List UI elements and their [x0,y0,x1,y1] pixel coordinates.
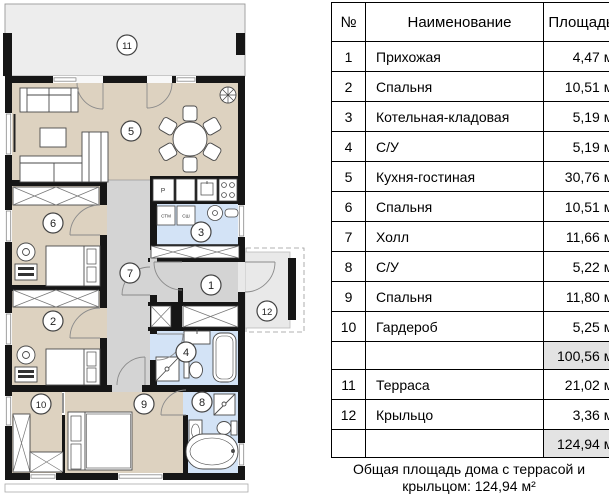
washer-icon-label: СТМ [161,214,171,219]
table-row: 5Кухня-гостиная30,76 м² [332,162,609,192]
bedroom6-furniture [15,243,100,286]
room-2-badge: 2 [50,316,56,328]
porch-room [245,248,304,332]
table-row: 2Спальня10,51 м² [332,72,609,102]
room-area-cell: 3,36 м² [544,400,609,430]
table-row: 6Спальня10,51 м² [332,192,609,222]
room-area-cell: 11,66 м² [544,222,609,252]
floor-plan-page: Р [0,0,609,502]
table-row: 7Холл11,66 м² [332,222,609,252]
table-row: 1Прихожая4,47 м² [332,42,609,72]
room-name-cell: Котельная-кладовая [366,102,544,132]
room-name-cell [366,430,544,458]
room-5-badge: 5 [128,126,134,138]
room-name-cell: Терраса [366,370,544,400]
walkway-strip [5,484,248,492]
table-row: 9Спальня11,80 м² [332,282,609,312]
room-10-badge: 10 [36,400,47,411]
room-6-badge: 6 [50,218,56,230]
room-area-cell: 11,80 м² [544,282,609,312]
room-number-cell: 4 [332,132,366,162]
dryer-icon-label: СШ [182,214,190,219]
total-row: 124,94 м² [332,430,609,458]
table-row: 3Котельная-кладовая5,19 м² [332,102,609,132]
room-11-badge: 11 [122,41,132,52]
room-name-cell: С/У [366,132,544,162]
room-name-cell: Спальня [366,282,544,312]
col-header-number: № [332,3,366,42]
table-row: 8С/У5,22 м² [332,252,609,282]
room-number-cell: 8 [332,252,366,282]
table-row: 4С/У5,19 м² [332,132,609,162]
room-area-cell: 5,22 м² [544,252,609,282]
room-number-cell: 9 [332,282,366,312]
room-number-cell: 5 [332,162,366,192]
table-row: 11Терраса21,02 м² [332,370,609,400]
room-name-cell: Крыльцо [366,400,544,430]
room-areas-table: № Наименование Площадь 1Прихожая4,47 м² … [331,2,609,458]
col-header-area: Площадь [544,3,609,42]
room-3-badge: 3 [198,227,204,239]
room-area-cell: 30,76 м² [544,162,609,192]
room-name-cell: Холл [366,222,544,252]
room-number-cell: 11 [332,370,366,400]
room-7-badge: 7 [127,268,133,280]
room-area-cell: 21,02 м² [544,370,609,400]
room-name-cell [366,342,544,370]
room-name-cell: С/У [366,252,544,282]
room-9-badge: 9 [141,399,147,411]
table-row: 10Гардероб5,25 м² [332,312,609,342]
room-1-badge: 1 [208,280,214,292]
room-number-cell: 1 [332,42,366,72]
room-number-cell: 2 [332,72,366,102]
room-8-badge: 8 [199,397,205,409]
fridge-icon-label: Р [161,188,165,195]
room-name-cell: Гардероб [366,312,544,342]
room-name-cell: Спальня [366,72,544,102]
kitchen-counter: Р [150,176,245,204]
room-area-cell: 4,47 м² [544,42,609,72]
room-number-cell: 3 [332,102,366,132]
room-number-cell: 7 [332,222,366,252]
total-area-cell: 124,94 м² [544,430,609,458]
room-name-cell: Кухня-гостиная [366,162,544,192]
subtotal-row: 100,56 м² [332,342,609,370]
room-area-cell: 10,51 м² [544,192,609,222]
subtotal-area-cell: 100,56 м² [544,342,609,370]
floor-plan-drawing: Р [0,0,330,502]
room-area-cell: 5,25 м² [544,312,609,342]
total-area-note: Общая площадь дома с террасой и крыльцом… [331,461,607,495]
plant-icon [220,87,236,103]
room-12-badge: 12 [262,307,273,318]
room-area-cell: 5,19 м² [544,132,609,162]
room-4-badge: 4 [183,347,189,359]
room-name-cell: Спальня [366,192,544,222]
room-number-cell [332,342,366,370]
table-row: 12Крыльцо3,36 м² [332,400,609,430]
room-number-cell: 6 [332,192,366,222]
room-number-cell [332,430,366,458]
room-name-cell: Прихожая [366,42,544,72]
room-area-cell: 5,19 м² [544,102,609,132]
room-number-cell: 10 [332,312,366,342]
room-area-cell: 10,51 м² [544,72,609,102]
col-header-name: Наименование [366,3,544,42]
table-header-row: № Наименование Площадь [332,3,609,42]
room-number-cell: 12 [332,400,366,430]
